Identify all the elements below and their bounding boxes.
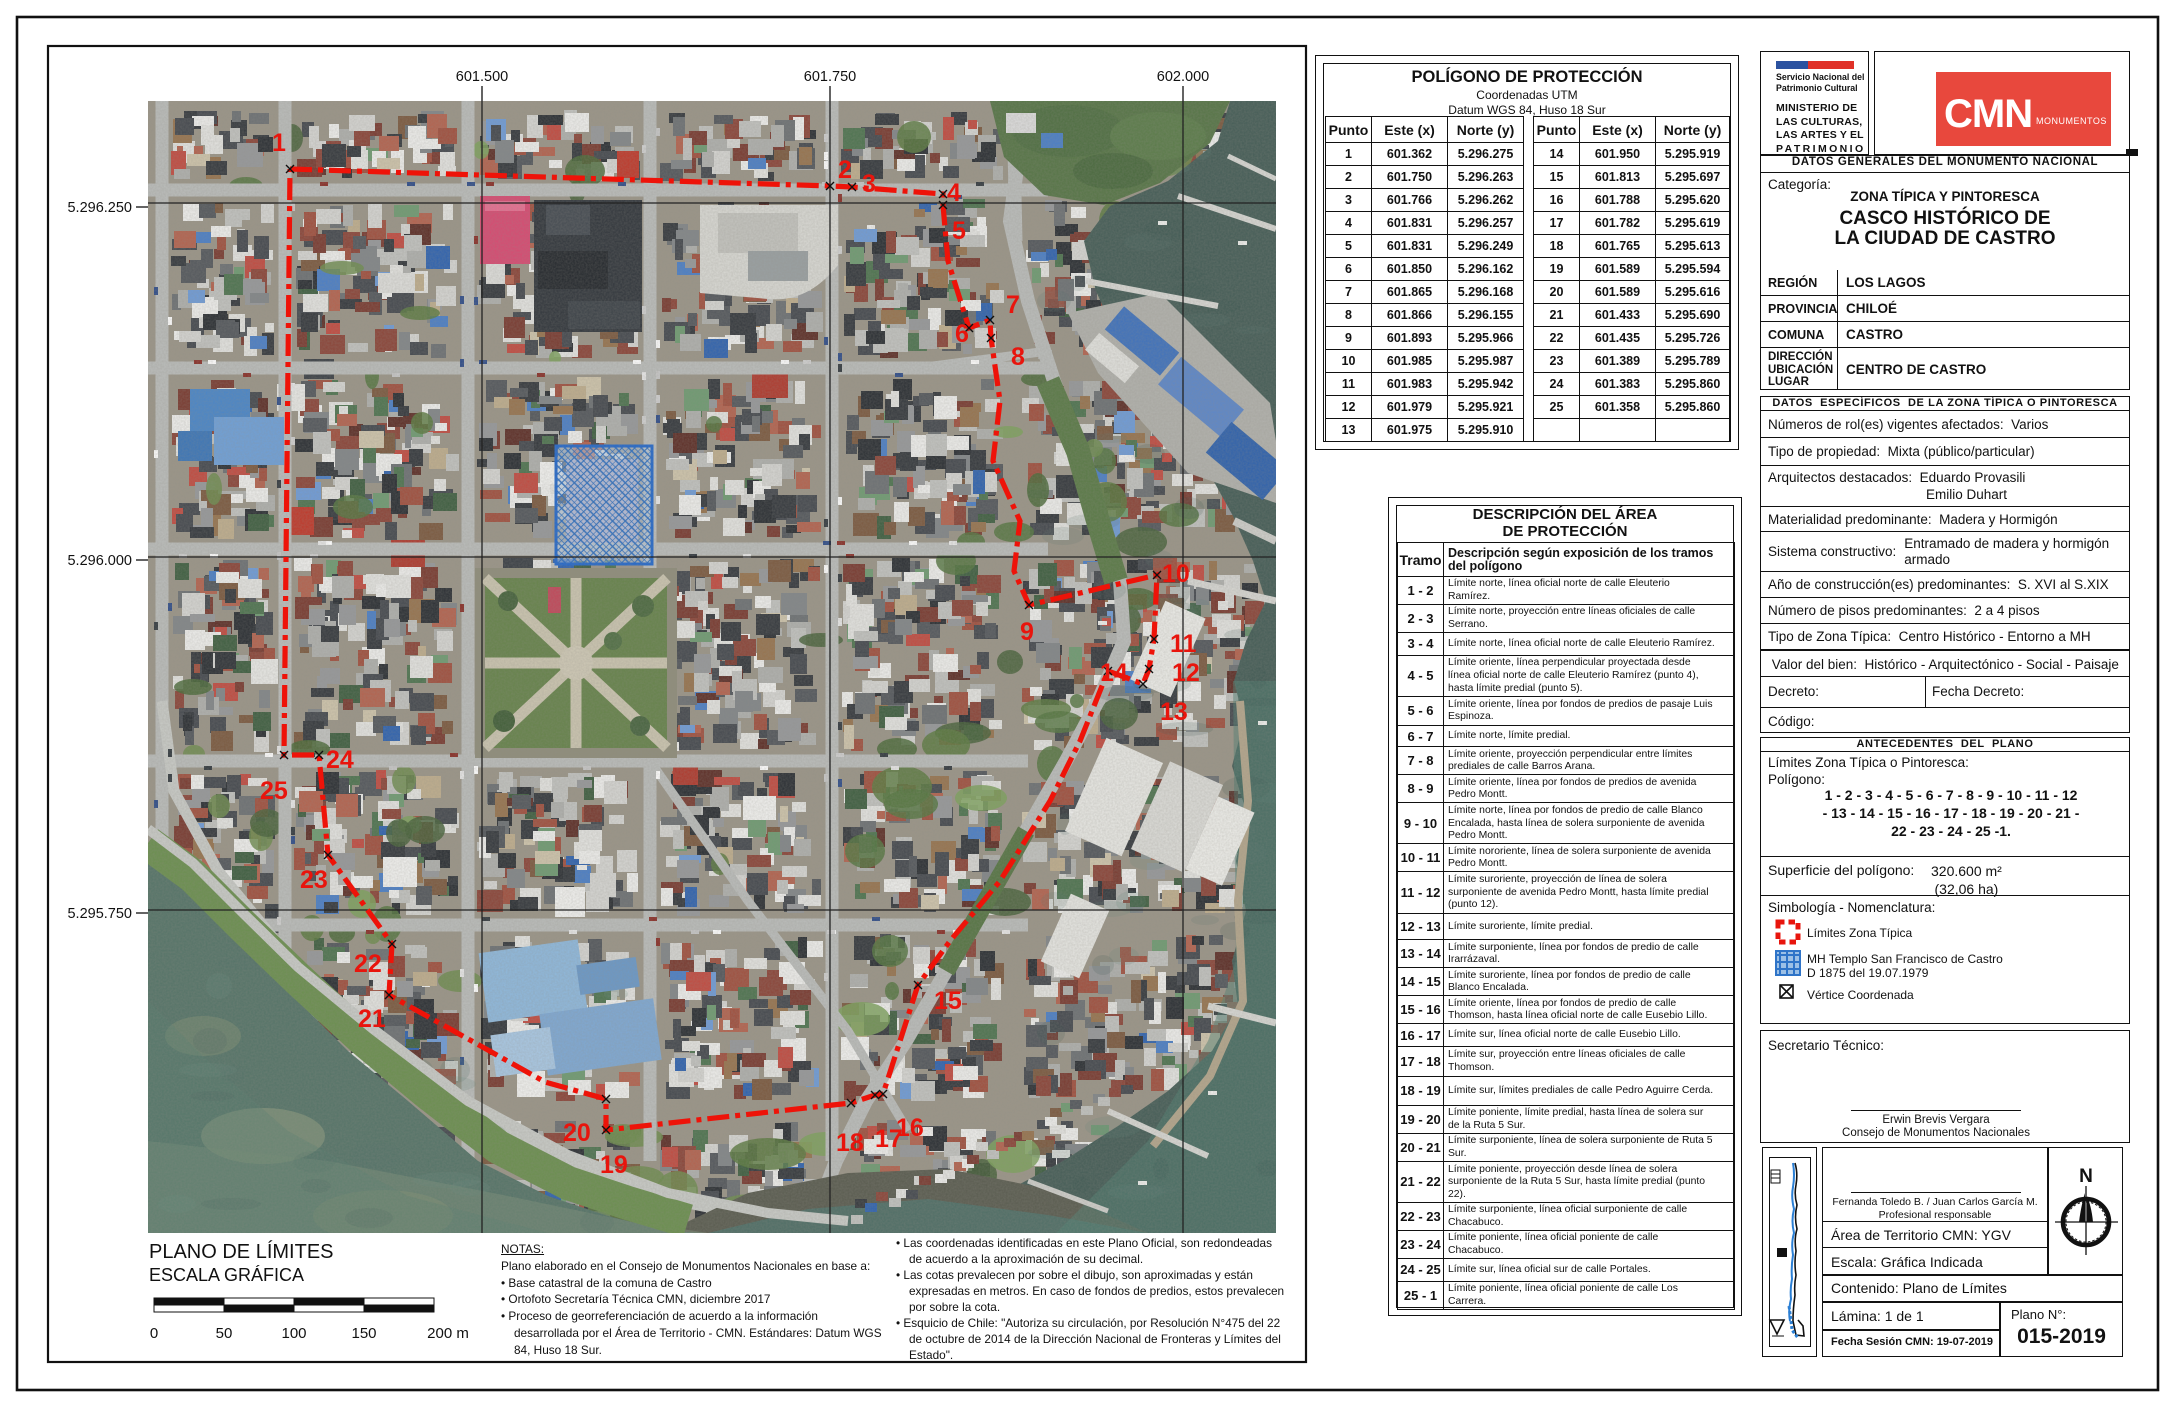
svg-text:25: 25 <box>260 777 288 805</box>
svg-text:3: 3 <box>862 170 876 198</box>
svg-text:2: 2 <box>838 156 852 184</box>
svg-text:8: 8 <box>1011 343 1025 371</box>
svg-text:22: 22 <box>354 950 382 978</box>
svg-text:14: 14 <box>1100 659 1128 687</box>
svg-text:5.296.250: 5.296.250 <box>67 200 132 216</box>
svg-text:19: 19 <box>600 1151 628 1179</box>
svg-text:100: 100 <box>281 1325 306 1342</box>
svg-text:5.296.000: 5.296.000 <box>67 553 132 569</box>
svg-text:15: 15 <box>934 987 962 1015</box>
svg-text:7: 7 <box>1006 291 1020 319</box>
svg-text:18: 18 <box>836 1129 864 1157</box>
svg-text:200 m: 200 m <box>427 1325 469 1342</box>
svg-text:24: 24 <box>326 746 354 774</box>
svg-text:23: 23 <box>300 866 328 894</box>
svg-text:150: 150 <box>351 1325 376 1342</box>
svg-text:9: 9 <box>1020 618 1034 646</box>
svg-text:5.295.750: 5.295.750 <box>67 906 132 922</box>
svg-text:0: 0 <box>150 1325 158 1342</box>
svg-text:11: 11 <box>1170 630 1197 658</box>
svg-text:601.750: 601.750 <box>804 69 856 85</box>
svg-text:20: 20 <box>563 1119 591 1147</box>
svg-text:601.500: 601.500 <box>456 69 508 85</box>
svg-text:4: 4 <box>947 179 961 207</box>
svg-text:5: 5 <box>952 217 966 245</box>
svg-text:N: N <box>2079 1166 2093 1187</box>
svg-text:50: 50 <box>216 1325 233 1342</box>
svg-text:10: 10 <box>1162 560 1190 588</box>
svg-text:12: 12 <box>1172 659 1200 687</box>
svg-text:6: 6 <box>955 320 969 348</box>
svg-text:17: 17 <box>875 1125 903 1153</box>
svg-text:1: 1 <box>272 129 286 157</box>
svg-text:602.000: 602.000 <box>1157 69 1209 85</box>
svg-text:21: 21 <box>358 1005 386 1033</box>
svg-text:13: 13 <box>1160 698 1188 726</box>
